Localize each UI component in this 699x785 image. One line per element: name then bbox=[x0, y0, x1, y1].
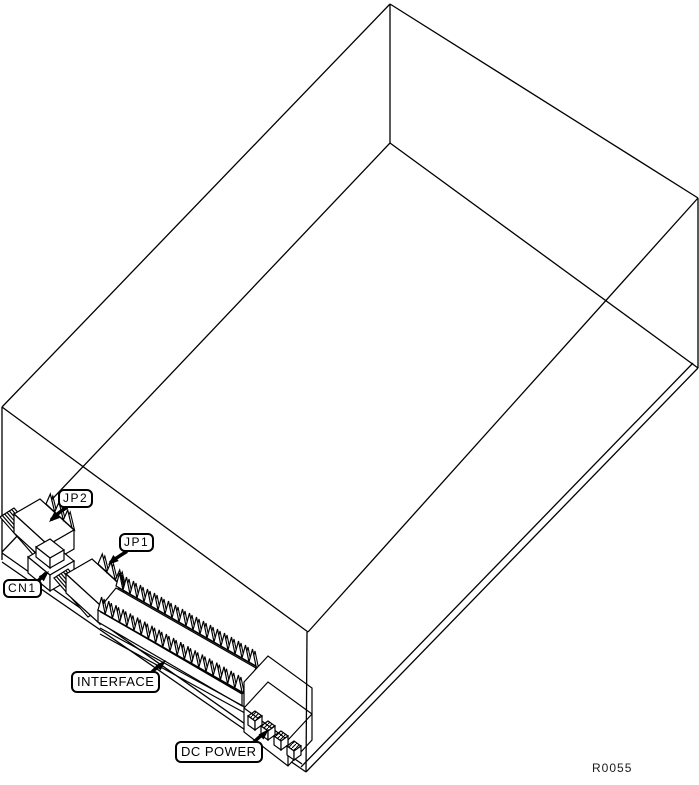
callout-cn1: CN1 bbox=[3, 579, 42, 598]
callout-interface: INTERFACE bbox=[71, 671, 160, 693]
case-wireframe bbox=[2, 4, 698, 772]
callout-jp2: JP2 bbox=[58, 489, 93, 508]
case-front-edges bbox=[301, 363, 698, 772]
figure-ref-code: R0055 bbox=[592, 761, 632, 775]
callout-dc-power: DC POWER bbox=[175, 741, 263, 763]
callout-jp1: JP1 bbox=[119, 533, 154, 552]
jp1-arrow-icon bbox=[108, 552, 126, 565]
interface-connector bbox=[98, 573, 259, 718]
diagram-canvas: JP2 JP1 CN1 INTERFACE DC POWER R0055 bbox=[0, 0, 699, 785]
drive-line-art bbox=[0, 0, 699, 785]
